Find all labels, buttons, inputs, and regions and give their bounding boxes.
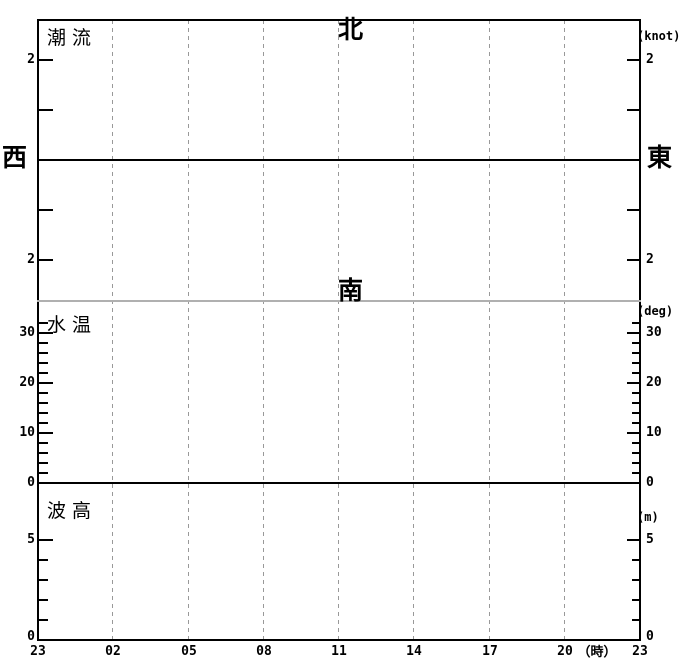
- y-minor-tick-left-water-temp: [39, 442, 48, 444]
- panel-title-wave-height: 波高: [47, 501, 97, 523]
- y-minor-tick-right-water-temp: [632, 402, 641, 404]
- y-tick-label-left-tidal-current-2: 2: [0, 52, 35, 68]
- y-major-tick-left-wave-height: [39, 539, 53, 541]
- x-tick-label-20-7: 20: [545, 644, 585, 659]
- current-zero-line: [37, 159, 641, 161]
- y-minor-tick-left-water-temp: [39, 402, 48, 404]
- y-minor-tick-left-wave-height: [39, 619, 48, 621]
- y-tick-label-right-water-temp-0: 0: [646, 475, 680, 491]
- y-axis-unit-m: (m): [637, 510, 659, 524]
- y-tick-label-right-water-temp-10: 10: [646, 425, 680, 441]
- panel-title-tidal-current: 潮流: [47, 28, 97, 50]
- y-major-tick-left-tidal-current: [39, 259, 53, 261]
- x-tick-label-05-2: 05: [169, 644, 209, 659]
- y-major-tick-left-tidal-current: [39, 209, 53, 211]
- x-gridline-17: [489, 20, 490, 640]
- x-gridline-05: [188, 20, 189, 640]
- y-minor-tick-right-water-temp: [632, 372, 641, 374]
- y-tick-label-left-tidal-current-2: 2: [0, 252, 35, 268]
- y-tick-label-left-wave-height-0: 0: [0, 629, 35, 645]
- y-minor-tick-left-water-temp: [39, 422, 48, 424]
- y-minor-tick-left-water-temp: [39, 452, 48, 454]
- y-major-tick-left-tidal-current: [39, 59, 53, 61]
- right-axis-line: [639, 19, 641, 641]
- temp-zero-line: [37, 482, 641, 484]
- y-tick-label-right-water-temp-20: 20: [646, 375, 680, 391]
- y-tick-label-right-wave-height-0: 0: [646, 629, 680, 645]
- compass-north-label: 北: [338, 17, 363, 43]
- compass-east-label: 東: [647, 145, 672, 171]
- y-minor-tick-right-water-temp: [632, 472, 641, 474]
- y-minor-tick-left-water-temp: [39, 342, 48, 344]
- y-minor-tick-right-water-temp: [632, 322, 641, 324]
- x-gridline-14: [413, 20, 414, 640]
- y-tick-label-right-wave-height-5: 5: [646, 532, 680, 548]
- y-major-tick-right-tidal-current: [627, 59, 641, 61]
- compass-south-label: 南: [338, 278, 363, 304]
- y-minor-tick-right-water-temp: [632, 352, 641, 354]
- y-minor-tick-right-water-temp: [632, 442, 641, 444]
- y-major-tick-right-wave-height: [627, 539, 641, 541]
- x-tick-label-17-6: 17: [470, 644, 510, 659]
- marine-forecast-chart: 北 南 西 東 潮流 水温 波高 (knot) (deg) (m) （時） 23…: [0, 0, 680, 660]
- y-tick-label-left-wave-height-5: 5: [0, 532, 35, 548]
- y-major-tick-left-wave-height: [39, 639, 53, 641]
- compass-west-label: 西: [2, 145, 27, 171]
- x-gridline-20: [564, 20, 565, 640]
- y-minor-tick-left-wave-height: [39, 559, 48, 561]
- y-major-tick-right-tidal-current: [627, 259, 641, 261]
- y-minor-tick-right-water-temp: [632, 452, 641, 454]
- x-axis-line: [37, 639, 641, 641]
- y-tick-label-left-water-temp-30: 30: [0, 325, 35, 341]
- y-major-tick-right-tidal-current: [627, 209, 641, 211]
- panel-title-water-temp: 水温: [47, 315, 97, 337]
- y-minor-tick-left-water-temp: [39, 392, 48, 394]
- y-minor-tick-left-wave-height: [39, 579, 48, 581]
- y-major-tick-right-water-temp: [627, 332, 641, 334]
- y-axis-unit-knot: (knot): [637, 29, 680, 43]
- x-tick-label-08-3: 08: [244, 644, 284, 659]
- x-tick-label-23-0: 23: [18, 644, 58, 659]
- y-minor-tick-right-water-temp: [632, 462, 641, 464]
- x-gridline-08: [263, 20, 264, 640]
- y-minor-tick-right-water-temp: [632, 362, 641, 364]
- y-tick-label-left-water-temp-10: 10: [0, 425, 35, 441]
- y-minor-tick-right-wave-height: [632, 619, 641, 621]
- x-tick-label-23-8: 23: [620, 644, 660, 659]
- y-minor-tick-left-water-temp: [39, 462, 48, 464]
- y-major-tick-right-water-temp: [627, 432, 641, 434]
- y-tick-label-right-tidal-current-2: 2: [646, 52, 680, 68]
- y-major-tick-left-water-temp: [39, 382, 53, 384]
- y-minor-tick-right-water-temp: [632, 412, 641, 414]
- y-minor-tick-left-wave-height: [39, 599, 48, 601]
- x-gridline-11: [338, 20, 339, 640]
- y-tick-label-left-water-temp-20: 20: [0, 375, 35, 391]
- x-tick-label-02-1: 02: [93, 644, 133, 659]
- x-gridline-02: [112, 20, 113, 640]
- y-axis-unit-deg: (deg): [637, 304, 673, 318]
- y-minor-tick-right-wave-height: [632, 599, 641, 601]
- y-major-tick-left-water-temp: [39, 432, 53, 434]
- y-minor-tick-right-water-temp: [632, 392, 641, 394]
- y-major-tick-right-wave-height: [627, 639, 641, 641]
- left-axis-line: [37, 19, 39, 641]
- y-minor-tick-right-wave-height: [632, 579, 641, 581]
- y-minor-tick-left-water-temp: [39, 412, 48, 414]
- y-tick-label-left-water-temp-0: 0: [0, 475, 35, 491]
- x-tick-label-11-4: 11: [319, 644, 359, 659]
- y-major-tick-left-water-temp: [39, 482, 53, 484]
- y-tick-label-right-water-temp-30: 30: [646, 325, 680, 341]
- y-major-tick-right-tidal-current: [627, 109, 641, 111]
- y-minor-tick-right-water-temp: [632, 422, 641, 424]
- y-minor-tick-right-water-temp: [632, 342, 641, 344]
- x-tick-label-14-5: 14: [394, 644, 434, 659]
- y-minor-tick-left-water-temp: [39, 362, 48, 364]
- y-major-tick-right-water-temp: [627, 382, 641, 384]
- y-minor-tick-right-wave-height: [632, 559, 641, 561]
- y-minor-tick-left-water-temp: [39, 472, 48, 474]
- y-minor-tick-left-water-temp: [39, 352, 48, 354]
- y-tick-label-right-tidal-current-2: 2: [646, 252, 680, 268]
- y-minor-tick-left-water-temp: [39, 372, 48, 374]
- y-major-tick-left-tidal-current: [39, 109, 53, 111]
- y-major-tick-right-water-temp: [627, 482, 641, 484]
